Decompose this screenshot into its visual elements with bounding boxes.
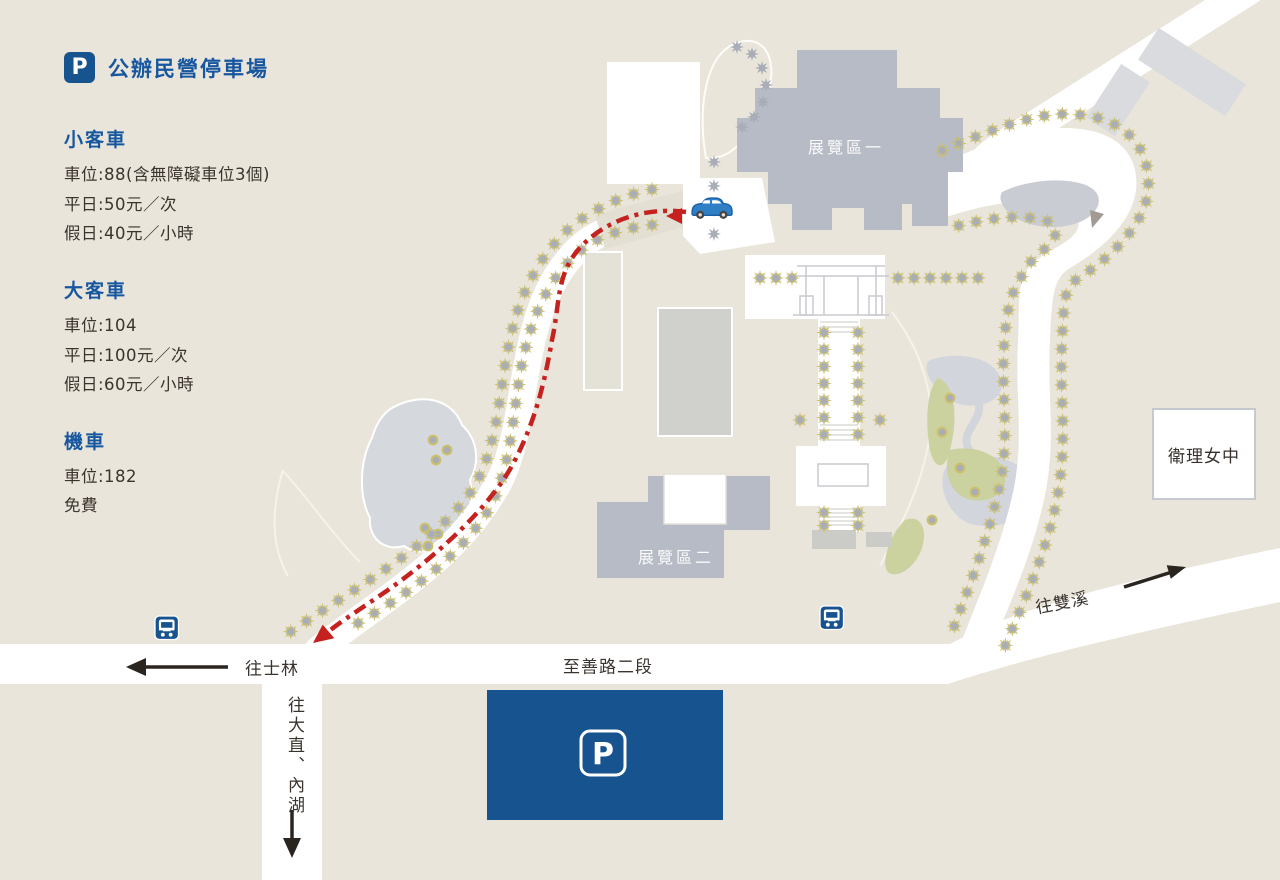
tree-icon — [816, 427, 832, 443]
library-building — [658, 308, 732, 436]
tree-icon — [1072, 107, 1088, 123]
label-exhibition-area-2: 展覽區二 — [638, 544, 714, 568]
tree-icon — [1138, 193, 1154, 209]
tree-icon — [1056, 305, 1072, 321]
label-school: 衛理女中 — [1168, 442, 1240, 467]
tree-icon — [707, 227, 721, 241]
section-line: 平日:100元／次 — [64, 346, 404, 367]
tree-icon — [970, 270, 986, 286]
tree-icon — [497, 358, 513, 374]
tree-icon — [462, 485, 478, 501]
tree-icon — [951, 218, 967, 234]
label-dir-dazhi-neihu: 往大直、內湖 — [282, 696, 307, 816]
tree-icon — [1139, 158, 1155, 174]
tree-icon — [559, 222, 575, 238]
legend-section-small-car: 小客車 車位:88(含無障礙車位3個) 平日:50元／次 假日:40元／小時 — [64, 125, 404, 245]
tree-icon — [398, 584, 414, 600]
section-line: 車位:104 — [64, 316, 404, 337]
p-badge-letter: P — [71, 55, 87, 80]
tree-icon — [1025, 571, 1041, 587]
bus-stop-icon-west — [155, 616, 178, 639]
tree-icon — [938, 270, 954, 286]
admin-building — [584, 252, 622, 390]
tree-icon — [591, 201, 607, 217]
tree-icon — [965, 567, 981, 583]
tree-icon — [850, 325, 866, 341]
tree-icon — [330, 592, 346, 608]
p-badge-icon: P — [64, 52, 95, 83]
tree-icon — [1107, 116, 1123, 132]
tree-icon — [998, 320, 1014, 336]
tree-icon — [514, 358, 530, 374]
section-line: 免費 — [64, 496, 404, 517]
tree-icon — [1131, 210, 1147, 226]
tree-icon — [494, 376, 510, 392]
tree-icon — [1005, 285, 1021, 301]
tree-icon — [626, 186, 642, 202]
tree-icon — [1004, 621, 1020, 637]
tree-icon — [922, 270, 938, 286]
tree-icon — [423, 526, 439, 542]
section-heading: 機車 — [64, 427, 404, 454]
tree-icon — [1047, 502, 1063, 518]
section-line: 平日:50元／次 — [64, 195, 404, 216]
tree-icon — [1011, 604, 1027, 620]
tree-icon — [850, 342, 866, 358]
tree-icon — [1031, 554, 1047, 570]
tree-icon — [538, 286, 554, 302]
section-heading: 大客車 — [64, 276, 404, 303]
parking-legend: P 公辦民營停車場 小客車 車位:88(含無障礙車位3個) 平日:50元／次 假… — [64, 52, 404, 548]
tree-icon — [816, 359, 832, 375]
tree-icon — [644, 217, 660, 233]
tree-icon — [850, 518, 866, 534]
tree-icon — [1068, 272, 1084, 288]
tree-icon — [315, 603, 331, 619]
parking-map-canvas: P P 公辦民營停車場 小客車 車位:88(含無障礙車位3個) 平日:50元／次 — [0, 0, 1280, 880]
tree-icon — [499, 452, 515, 468]
tree-icon — [1110, 239, 1126, 255]
tree-icon — [1055, 413, 1071, 429]
tree-icon — [450, 500, 466, 516]
tree-icon — [502, 433, 518, 449]
tree-icon — [707, 179, 721, 193]
tree-icon — [816, 410, 832, 426]
tree-icon — [1054, 377, 1070, 393]
tree-icon — [455, 535, 471, 551]
tree-icon — [505, 320, 521, 336]
tree-icon — [1001, 117, 1017, 133]
section-line: 車位:182 — [64, 467, 404, 488]
tree-icon — [906, 270, 922, 286]
tree-icon — [982, 516, 998, 532]
tree-icon — [994, 464, 1010, 480]
tree-icon — [346, 582, 362, 598]
tree-icon — [850, 393, 866, 409]
section-line: 車位:88(含無障礙車位3個) — [64, 165, 404, 186]
tree-icon — [707, 155, 721, 169]
tree-icon — [1036, 108, 1052, 124]
tree-icon — [366, 605, 382, 621]
tree-icon — [984, 122, 1000, 138]
tree-icon — [1097, 251, 1113, 267]
tree-icon — [1042, 520, 1058, 536]
tree-icon — [996, 338, 1012, 354]
tree-icon — [510, 377, 526, 393]
tree-icon — [1140, 176, 1156, 192]
tree-icon — [625, 220, 641, 236]
tree-icon — [1121, 127, 1137, 143]
tree-icon — [1090, 110, 1106, 126]
tree-icon — [1055, 431, 1071, 447]
tree-icon — [1058, 287, 1074, 303]
tree-icon — [1050, 485, 1066, 501]
tree-icon — [850, 427, 866, 443]
tree-icon — [953, 601, 969, 617]
exhibition-1-annex — [912, 166, 948, 226]
tree-icon — [413, 573, 429, 589]
tree-icon — [1047, 227, 1063, 243]
tree-icon — [518, 339, 534, 355]
tree-icon — [1121, 225, 1137, 241]
tree-icon — [997, 410, 1013, 426]
school-box: 衛理女中 — [1152, 408, 1256, 500]
tree-icon — [530, 303, 546, 319]
bus-stop-icon-museum — [820, 606, 843, 629]
section-line: 假日:60元／小時 — [64, 375, 404, 396]
tree-icon — [991, 481, 1007, 497]
tree-icon — [816, 518, 832, 534]
tree-icon — [997, 428, 1013, 444]
tree-icon — [508, 395, 524, 411]
tree-icon — [1018, 588, 1034, 604]
tree-icon — [500, 339, 516, 355]
tree-icon — [644, 181, 660, 197]
tree-icon — [1037, 537, 1053, 553]
tree-icon — [1000, 302, 1016, 318]
tree-icon — [1014, 269, 1030, 285]
legend-section-bus: 大客車 車位:104 平日:100元／次 假日:60元／小時 — [64, 276, 404, 396]
tree-icon — [1054, 449, 1070, 465]
label-exhibition-area-1: 展覽區一 — [808, 134, 884, 158]
legend-section-motorcycle: 機車 車位:182 免費 — [64, 427, 404, 517]
tree-icon — [362, 572, 378, 588]
tree-icon — [1054, 395, 1070, 411]
tree-icon — [1054, 341, 1070, 357]
tree-icon — [491, 395, 507, 411]
tree-icon — [523, 321, 539, 337]
tree-icon — [954, 270, 970, 286]
tree-icon — [890, 270, 906, 286]
tree-icon — [472, 468, 488, 484]
tree-icon — [378, 561, 394, 577]
tree-icon — [1004, 209, 1020, 225]
tree-icon — [1022, 210, 1038, 226]
tree-icon — [968, 214, 984, 230]
tree-icon — [1019, 112, 1035, 128]
road-approach — [607, 62, 700, 184]
section-heading: 小客車 — [64, 125, 404, 152]
tree-icon — [442, 548, 458, 564]
tree-icon — [977, 533, 993, 549]
tree-icon — [479, 451, 495, 467]
tree-icon — [1054, 106, 1070, 122]
tree-icon — [987, 499, 1003, 515]
tree-icon — [850, 376, 866, 392]
tree-icon — [382, 595, 398, 611]
tree-icon — [283, 624, 299, 640]
tree-icon — [505, 414, 521, 430]
tree-icon — [1082, 262, 1098, 278]
tree-icon — [996, 374, 1012, 390]
tree-icon — [1055, 323, 1071, 339]
tree-icon — [409, 538, 425, 554]
legend-title-text: 公辦民營停車場 — [108, 53, 269, 83]
gate-block-2 — [866, 532, 892, 547]
tree-icon — [350, 615, 366, 631]
tree-icon — [299, 613, 315, 629]
tree-icon — [510, 302, 526, 318]
tree-icon — [816, 376, 832, 392]
gate-block — [812, 530, 856, 549]
plaza-upper — [745, 255, 885, 319]
tree-icon — [535, 251, 551, 267]
tree-icon — [1036, 241, 1052, 257]
tree-icon — [946, 618, 962, 634]
tree-icon — [816, 342, 832, 358]
tree-icon — [816, 393, 832, 409]
section-line: 假日:40元／小時 — [64, 224, 404, 245]
tree-icon — [546, 236, 562, 252]
tree-icon — [428, 561, 444, 577]
tree-icon — [394, 550, 410, 566]
tree-icon — [1053, 359, 1069, 375]
tree-icon — [608, 193, 624, 209]
tree-icon — [488, 414, 504, 430]
tree-icon — [850, 359, 866, 375]
tree-icon — [574, 211, 590, 227]
label-road-zhishan: 至善路二段 — [563, 653, 653, 678]
tree-icon — [816, 325, 832, 341]
tree-icon — [959, 584, 975, 600]
tree-icon — [1023, 254, 1039, 270]
legend-title: P 公辦民營停車場 — [64, 52, 404, 83]
tree-icon — [968, 129, 984, 145]
tree-icon — [951, 136, 967, 152]
tree-icon — [996, 392, 1012, 408]
tree-icon — [1053, 467, 1069, 483]
tree-icon — [996, 446, 1012, 462]
tree-icon — [437, 514, 453, 530]
p-sign-letter: P — [592, 737, 614, 772]
tree-icon — [517, 284, 533, 300]
tree-icon — [986, 211, 1002, 227]
tree-icon — [784, 270, 800, 286]
tree-icon — [971, 550, 987, 566]
tree-icon — [1040, 213, 1056, 229]
fountain-outline — [818, 464, 868, 486]
tree-icon — [934, 143, 950, 159]
tree-icon — [752, 270, 768, 286]
tree-icon — [850, 410, 866, 426]
label-dir-shilin: 往士林 — [245, 655, 299, 680]
tree-icon — [484, 433, 500, 449]
tree-icon — [997, 637, 1013, 653]
tree-icon — [525, 267, 541, 283]
white-annex-building — [664, 474, 726, 524]
tree-icon — [1132, 141, 1148, 157]
tree-icon — [768, 270, 784, 286]
tree-icon — [995, 356, 1011, 372]
